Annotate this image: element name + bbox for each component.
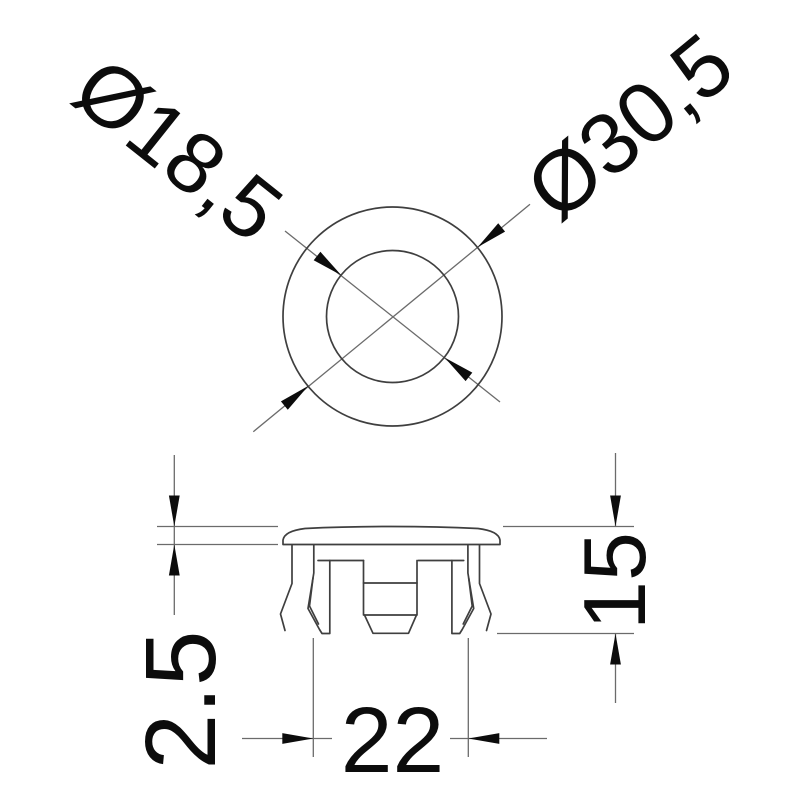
cap-body-profile — [281, 545, 492, 634]
technical-drawing-canvas: Ø18,5 Ø30,5 — [0, 0, 800, 800]
arrowhead-icon — [169, 545, 180, 576]
height-dimension: 15 — [497, 453, 664, 703]
width-dimension: 22 — [242, 638, 547, 792]
arrowhead-icon — [441, 353, 472, 381]
cap-rim-profile — [283, 527, 500, 545]
right-leg-inner-edge — [463, 578, 472, 624]
side-view: 2.5 15 22 — [125, 453, 664, 792]
top-view: Ø18,5 Ø30,5 — [56, 16, 751, 432]
rim-thickness-dimension: 2.5 — [125, 455, 278, 770]
outer-width-label: 22 — [341, 688, 444, 792]
left-skirt-line — [281, 545, 293, 631]
rim-thickness-label: 2.5 — [125, 630, 237, 769]
right-skirt-line — [480, 545, 492, 631]
arrowhead-icon — [468, 733, 499, 744]
left-leg-inner-edge — [310, 578, 319, 624]
inner-diameter-label: Ø18,5 — [56, 40, 299, 261]
outer-diameter-label: Ø30,5 — [509, 16, 751, 239]
arrowhead-icon — [610, 634, 621, 665]
drawing-page: Ø18,5 Ø30,5 — [0, 0, 800, 800]
arrowhead-icon — [610, 496, 621, 527]
arrowhead-icon — [169, 496, 180, 527]
bucket-boss-outline — [365, 615, 417, 633]
arrowhead-icon — [282, 733, 313, 744]
overall-height-label: 15 — [565, 532, 664, 630]
